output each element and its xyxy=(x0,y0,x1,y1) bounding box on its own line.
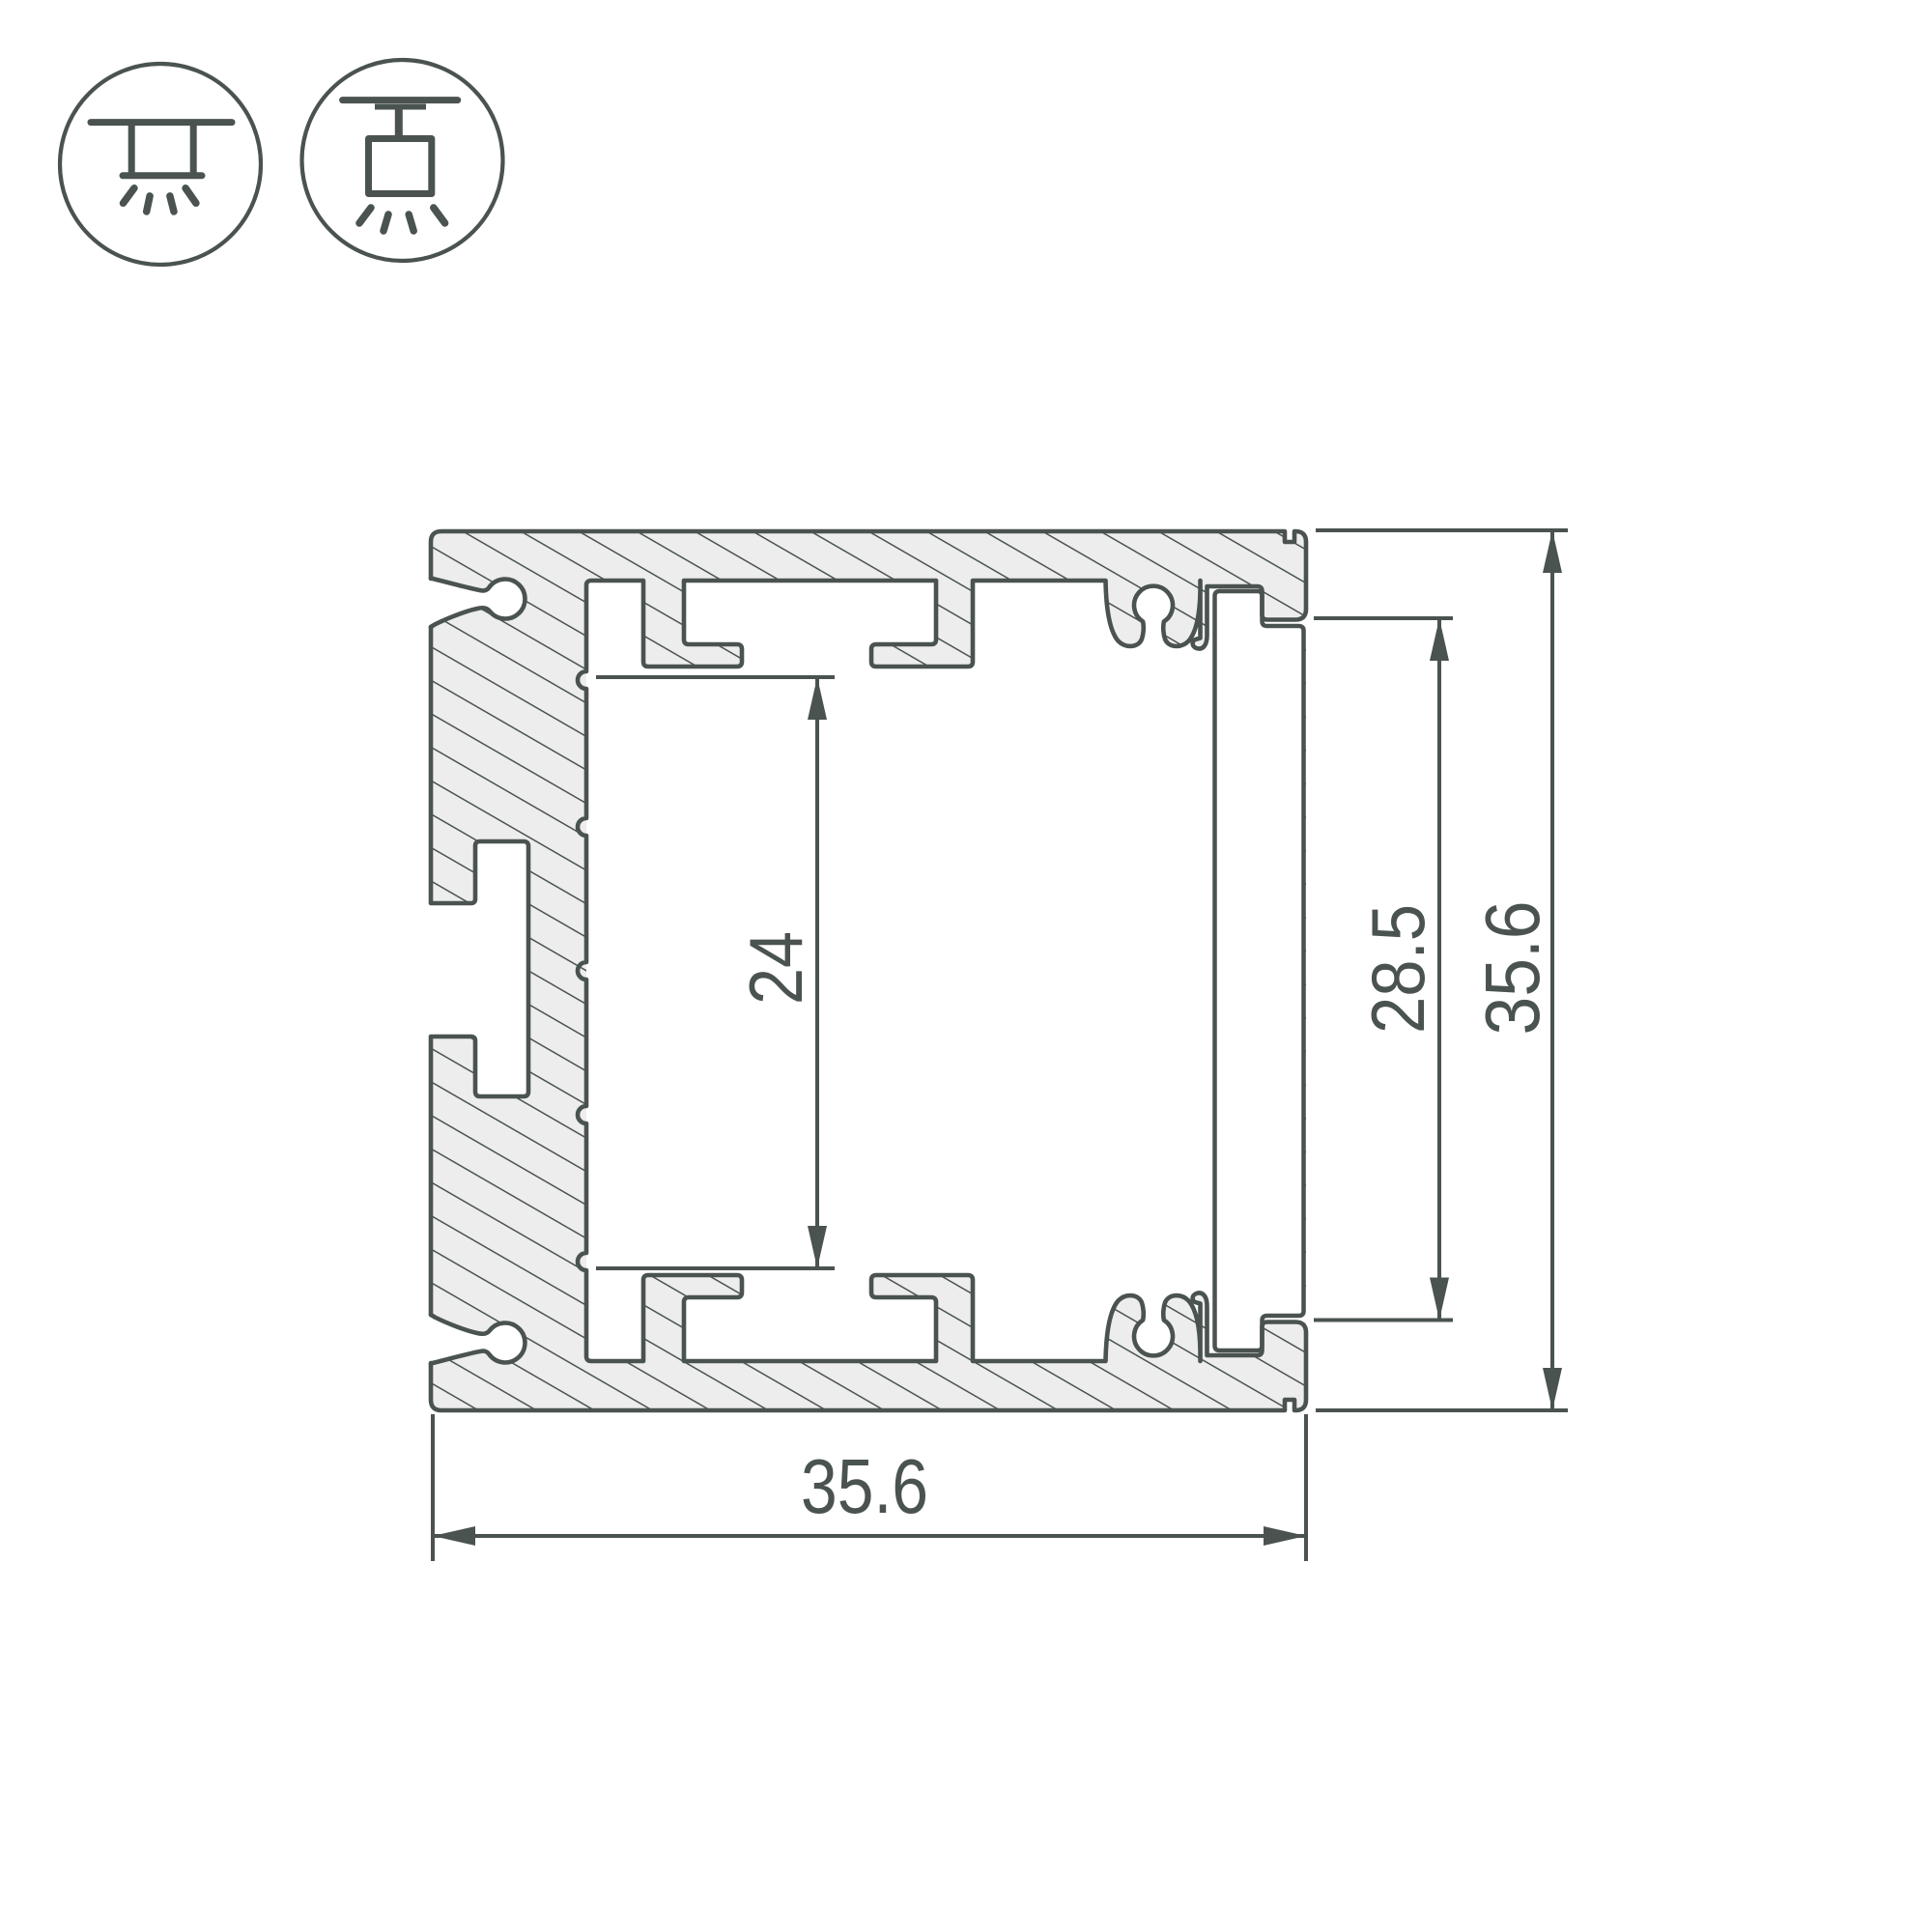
svg-text:24: 24 xyxy=(733,931,818,1005)
svg-text:28.5: 28.5 xyxy=(1355,904,1440,1034)
svg-text:35.6: 35.6 xyxy=(801,1443,928,1529)
svg-text:35.6: 35.6 xyxy=(1469,901,1555,1036)
